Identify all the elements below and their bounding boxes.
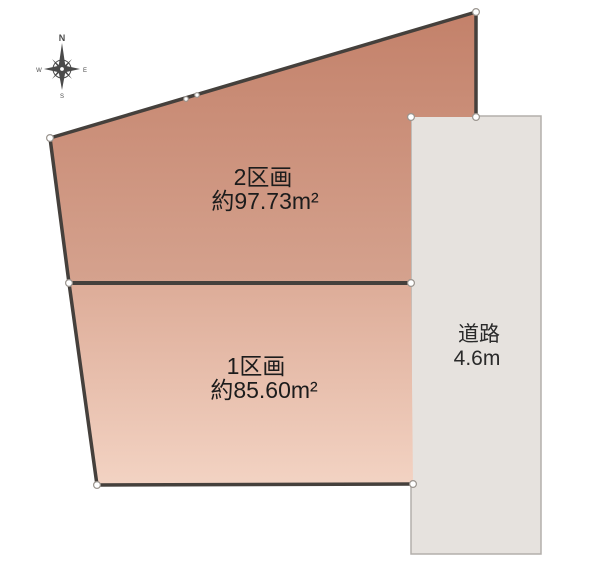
road-name: 道路 (458, 323, 500, 346)
compass-hub (60, 67, 65, 72)
compass-rose: N W E S (36, 33, 87, 100)
survey-point-marker (408, 114, 415, 121)
compass-east-label: E (83, 68, 87, 74)
compass-south-label: S (60, 94, 64, 100)
survey-point-marker (473, 114, 480, 121)
survey-point-marker (66, 280, 73, 287)
survey-point-marker (47, 135, 54, 142)
land-plot-diagram: N W E S 2区画 約97.73m² 1区画 約85.60m² 道路 4.6… (0, 0, 600, 565)
compass-west-label: W (36, 68, 42, 74)
parcel-2-name: 2区画 (234, 164, 293, 190)
survey-point-marker (195, 93, 200, 98)
plot-canvas: N W E S 2区画 約97.73m² 1区画 約85.60m² 道路 4.6… (0, 0, 600, 565)
parcel-2-area: 約97.73m² (211, 188, 319, 214)
parcel-1-name: 1区画 (227, 353, 286, 379)
road-width: 4.6m (454, 347, 501, 370)
survey-point-marker (94, 482, 101, 489)
survey-point-marker (408, 280, 415, 287)
compass-point-north (59, 43, 66, 69)
parcel-1-area: 約85.60m² (210, 377, 318, 403)
boundary-bottom (97, 484, 413, 485)
survey-point-marker (184, 97, 189, 102)
survey-point-marker (473, 9, 480, 16)
road-labels: 道路 4.6m (454, 323, 501, 370)
survey-point-marker (410, 481, 417, 488)
compass-north-label: N (59, 33, 66, 43)
